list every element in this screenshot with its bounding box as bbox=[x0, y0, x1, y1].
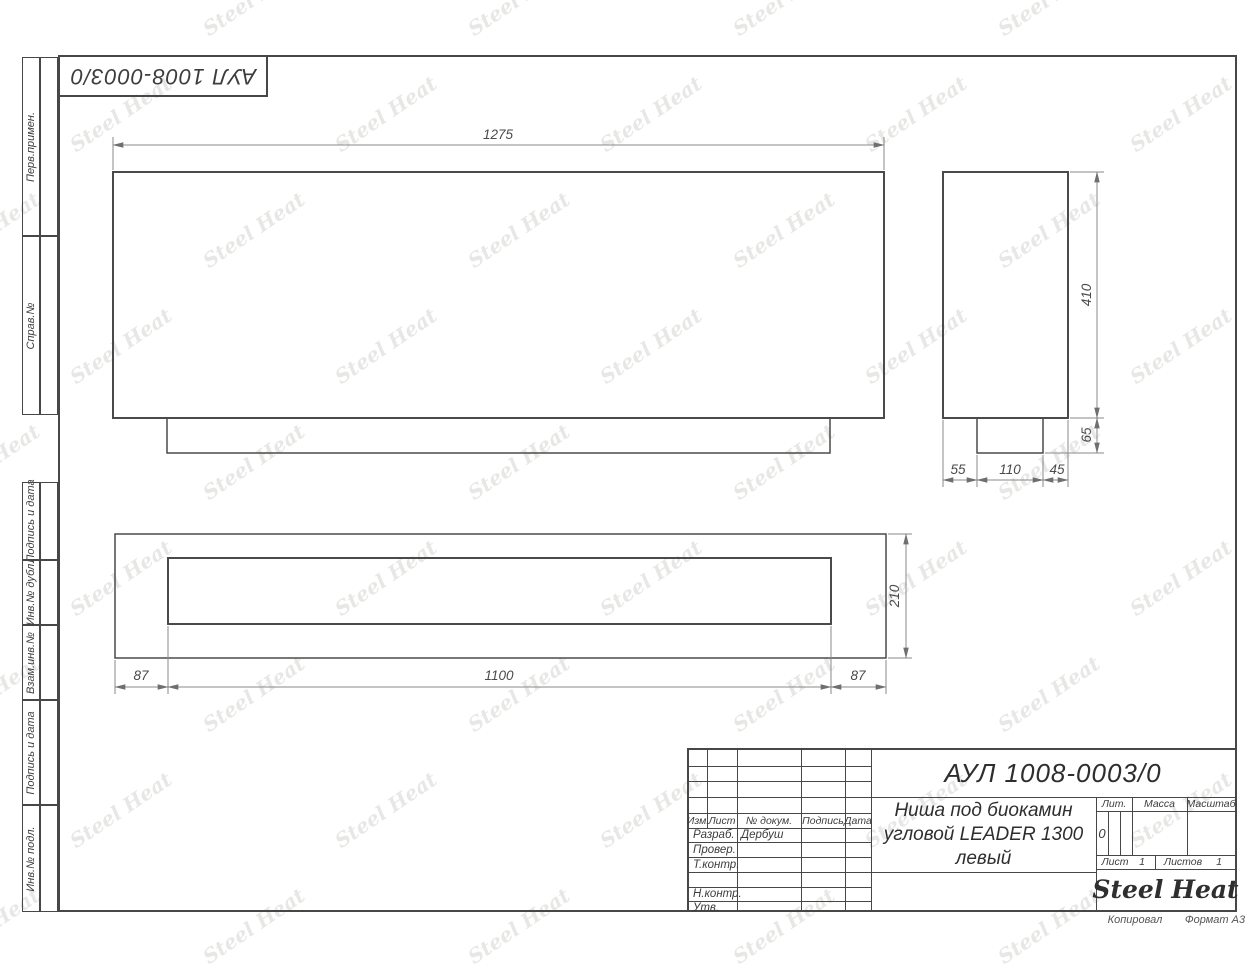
front-view-body bbox=[113, 172, 884, 418]
views-canvas: 1275 410 65 bbox=[0, 0, 1255, 970]
bottom-view-opening bbox=[168, 558, 831, 624]
bottom-view: 87 1100 87 210 bbox=[115, 534, 912, 694]
dim-text-87-left: 87 bbox=[133, 668, 149, 683]
side-view-body bbox=[943, 172, 1068, 418]
front-view-base bbox=[167, 418, 830, 453]
dim-text-410: 410 bbox=[1079, 283, 1094, 306]
dim-text-210: 210 bbox=[887, 584, 902, 608]
dim-text-87-right: 87 bbox=[850, 668, 866, 683]
dim-text-45: 45 bbox=[1049, 462, 1065, 477]
side-view: 410 65 55 110 45 bbox=[943, 172, 1104, 487]
bottom-view-body bbox=[115, 534, 886, 658]
dim-text-110: 110 bbox=[999, 462, 1021, 477]
dim-text-1100: 1100 bbox=[484, 668, 514, 683]
drawing-sheet: Steel HeatSteel HeatSteel HeatSteel Heat… bbox=[0, 0, 1255, 970]
front-view: 1275 bbox=[113, 127, 884, 453]
dim-text-65: 65 bbox=[1079, 427, 1094, 443]
dim-text-1275: 1275 bbox=[483, 127, 514, 142]
dim-text-55: 55 bbox=[950, 462, 966, 477]
side-view-base bbox=[977, 418, 1043, 453]
